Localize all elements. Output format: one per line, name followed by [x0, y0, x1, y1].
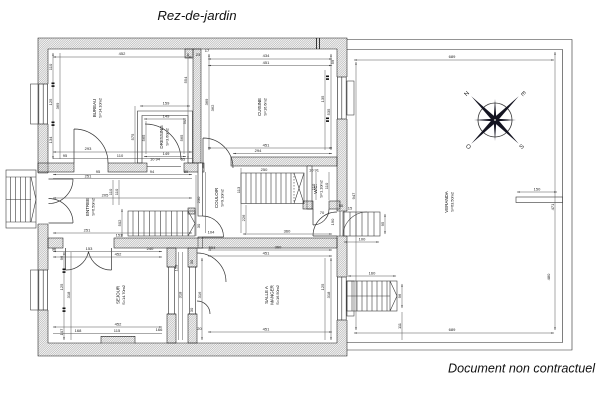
svg-text:95: 95 — [63, 153, 68, 158]
svg-text:10 94: 10 94 — [150, 157, 161, 162]
svg-text:251: 251 — [84, 228, 91, 233]
svg-text:111: 111 — [397, 322, 402, 329]
svg-text:451: 451 — [263, 143, 270, 148]
svg-text:55: 55 — [181, 157, 186, 162]
svg-text:451: 451 — [263, 251, 270, 256]
svg-text:293: 293 — [85, 146, 92, 151]
svg-text:471: 471 — [550, 203, 555, 210]
svg-text:Rez-de-jardin: Rez-de-jardin — [157, 8, 236, 23]
svg-text:480: 480 — [546, 273, 551, 280]
svg-text:947: 947 — [351, 192, 356, 199]
svg-text:S=16.6m2: S=16.6m2 — [263, 97, 268, 115]
svg-text:190: 190 — [330, 218, 335, 225]
svg-text:205: 205 — [102, 193, 109, 198]
svg-text:95: 95 — [380, 221, 385, 226]
svg-text:149: 149 — [163, 114, 170, 119]
svg-text:318: 318 — [178, 291, 183, 298]
svg-text:369: 369 — [204, 98, 209, 105]
svg-text:575: 575 — [130, 133, 135, 140]
svg-text:554: 554 — [183, 76, 188, 83]
svg-text:504: 504 — [209, 245, 216, 250]
svg-text:COULOIR: COULOIR — [214, 187, 219, 208]
svg-text:BUREAU: BUREAU — [92, 99, 97, 118]
svg-text:689: 689 — [449, 54, 456, 59]
svg-text:W.C.: W.C. — [313, 184, 318, 194]
svg-text:CUISINE: CUISINE — [257, 98, 262, 116]
svg-text:30: 30 — [189, 307, 194, 312]
svg-text:125: 125 — [320, 283, 325, 290]
svg-text:250: 250 — [261, 167, 268, 172]
svg-text:110: 110 — [108, 188, 113, 195]
svg-text:125: 125 — [48, 98, 53, 105]
svg-text:96: 96 — [52, 247, 57, 252]
svg-text:134: 134 — [48, 136, 53, 143]
svg-text:150: 150 — [534, 187, 541, 192]
svg-text:153: 153 — [86, 246, 93, 251]
svg-text:110: 110 — [48, 63, 53, 70]
svg-text:S=1.10m2: S=1.10m2 — [319, 179, 324, 197]
svg-text:360: 360 — [275, 245, 282, 250]
svg-text:104: 104 — [208, 230, 215, 235]
svg-text:125: 125 — [59, 283, 64, 290]
svg-text:230: 230 — [196, 196, 201, 203]
svg-text:226: 226 — [241, 214, 246, 221]
svg-text:502: 502 — [117, 219, 122, 226]
svg-text:360: 360 — [284, 229, 291, 234]
svg-text:110: 110 — [117, 153, 124, 158]
svg-text:153: 153 — [116, 233, 123, 238]
svg-text:294: 294 — [255, 148, 262, 153]
svg-text:251: 251 — [85, 173, 92, 178]
svg-text:452: 452 — [115, 322, 122, 327]
svg-text:452: 452 — [119, 51, 126, 56]
svg-text:153: 153 — [174, 264, 179, 271]
svg-text:S=14.70m2: S=14.70m2 — [121, 284, 126, 305]
svg-text:MANGER: MANGER — [270, 284, 275, 304]
svg-text:434: 434 — [263, 53, 270, 58]
svg-text:110: 110 — [324, 182, 329, 189]
svg-text:451: 451 — [263, 60, 270, 65]
svg-text:50: 50 — [339, 203, 344, 208]
svg-text:10 91: 10 91 — [309, 168, 320, 173]
svg-text:96: 96 — [397, 293, 402, 298]
svg-text:168: 168 — [75, 328, 82, 333]
svg-text:135: 135 — [320, 95, 325, 102]
svg-text:S=3.60m2: S=3.60m2 — [165, 127, 170, 145]
svg-text:452: 452 — [115, 252, 122, 257]
svg-text:96: 96 — [59, 255, 64, 260]
svg-text:15: 15 — [348, 206, 353, 211]
svg-text:113: 113 — [236, 186, 241, 193]
svg-text:94: 94 — [150, 169, 155, 174]
svg-text:318: 318 — [66, 291, 71, 298]
svg-text:17: 17 — [205, 48, 210, 53]
svg-text:S=16.50m2: S=16.50m2 — [275, 284, 280, 305]
svg-text:362: 362 — [210, 104, 215, 111]
svg-text:59: 59 — [330, 59, 335, 64]
svg-text:SALLE A: SALLE A — [264, 285, 269, 304]
svg-text:318: 318 — [326, 291, 331, 298]
svg-text:689: 689 — [449, 327, 456, 332]
svg-text:565: 565 — [179, 134, 184, 141]
svg-text:50: 50 — [182, 119, 187, 124]
svg-text:23: 23 — [196, 52, 201, 57]
svg-text:451: 451 — [263, 327, 270, 332]
svg-text:107: 107 — [59, 328, 64, 335]
svg-text:160: 160 — [369, 271, 376, 276]
svg-text:VERANDA: VERANDA — [444, 190, 449, 213]
svg-text:30: 30 — [196, 223, 201, 228]
svg-text:SEJOUR: SEJOUR — [116, 285, 121, 304]
svg-text:535: 535 — [326, 108, 331, 115]
svg-text:S=9.10m2: S=9.10m2 — [220, 188, 225, 206]
svg-text:DRESSING: DRESSING — [159, 125, 164, 149]
svg-text:S=14.10m2: S=14.10m2 — [98, 97, 103, 118]
svg-text:ENTREE: ENTREE — [85, 198, 90, 216]
svg-text:166: 166 — [156, 327, 163, 332]
svg-text:369: 369 — [55, 102, 60, 109]
svg-text:80: 80 — [184, 169, 189, 174]
svg-text:95: 95 — [96, 169, 101, 174]
svg-text:115: 115 — [114, 328, 121, 333]
svg-text:565: 565 — [141, 134, 146, 141]
svg-text:110: 110 — [114, 188, 119, 195]
svg-text:316: 316 — [197, 291, 202, 298]
svg-text:240: 240 — [147, 246, 154, 251]
svg-text:S=6.50m2: S=6.50m2 — [91, 197, 96, 215]
svg-text:20: 20 — [197, 326, 202, 331]
svg-text:30: 30 — [189, 259, 194, 264]
svg-text:159: 159 — [163, 101, 170, 106]
svg-text:149: 149 — [163, 151, 170, 156]
svg-text:Document non contractuel: Document non contractuel — [448, 362, 596, 376]
svg-text:100: 100 — [359, 237, 366, 242]
svg-text:70: 70 — [320, 210, 325, 215]
svg-text:S=63.50m2: S=63.50m2 — [450, 191, 455, 212]
